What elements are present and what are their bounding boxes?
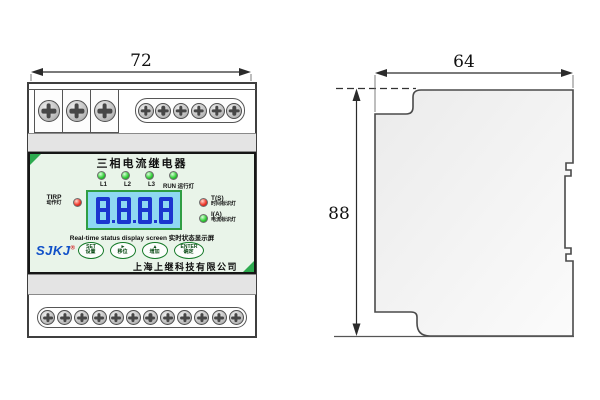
upper-gray-band — [28, 133, 256, 152]
set-button: SET 设置 — [78, 242, 104, 259]
screw-terminal-icon — [209, 103, 225, 119]
arrow-left-icon — [375, 69, 387, 77]
current-subtext: 电流标识灯 — [211, 218, 236, 224]
decimal-point-icon — [112, 220, 115, 223]
segment-digit — [159, 197, 173, 224]
arrow-right-icon — [561, 69, 573, 77]
shift-button-cn: 移位 — [118, 250, 128, 255]
led-run-icon — [169, 171, 178, 180]
front-width-value: 72 — [130, 51, 152, 71]
enter-button: ENTER 确定 — [174, 242, 204, 259]
segment-digit — [96, 197, 110, 224]
led-l3-icon — [145, 171, 154, 180]
screw-terminal-icon — [74, 310, 89, 325]
screw-terminal-icon — [138, 103, 154, 119]
screw-terminal-icon — [38, 100, 60, 122]
terminal-cell — [62, 89, 91, 133]
company-name: 上海上继科技有限公司 — [133, 260, 238, 273]
brand-logo: SJKJ® — [36, 243, 75, 258]
segment-digit — [117, 197, 131, 224]
top-terminal-cells — [34, 89, 119, 133]
bottom-terminal-strip — [37, 307, 247, 328]
seven-segment-display — [86, 190, 182, 230]
increase-button: ▲ 增加 — [142, 242, 168, 259]
screw-terminal-icon — [109, 310, 124, 325]
increase-button-cn: 增加 — [150, 250, 160, 255]
screw-terminal-icon — [155, 103, 171, 119]
front-width-dimension: 72 — [25, 50, 260, 82]
led-l3-label: L3 — [148, 182, 155, 188]
side-profile-outline — [375, 90, 573, 336]
lower-gray-band — [28, 274, 256, 295]
enter-button-cn: 确定 — [184, 250, 194, 255]
display-digits — [96, 197, 173, 224]
screw-terminal-icon — [191, 103, 207, 119]
screw-terminal-icon — [160, 310, 175, 325]
decimal-point-icon — [133, 220, 136, 223]
relay-side-view: 88 64 — [325, 50, 583, 372]
brand-name: SJKJ — [36, 243, 71, 258]
led-current-icon — [199, 214, 208, 223]
technical-drawing: 72 三相电流继电器 L1 L2 L3 RUN 运行灯 — [0, 0, 600, 400]
trip-led-label: TIRP 动作灯 — [38, 194, 70, 207]
decimal-point-icon — [154, 220, 157, 223]
top-terminal-strip — [135, 98, 245, 123]
screw-terminal-icon — [229, 310, 244, 325]
time-subtext: 时间标识灯 — [211, 202, 236, 208]
screw-terminal-icon — [66, 100, 88, 122]
segment-digit — [138, 197, 152, 224]
screw-terminal-icon — [194, 310, 209, 325]
screw-terminal-icon — [40, 310, 55, 325]
screw-terminal-icon — [173, 103, 189, 119]
led-l1-label: L1 — [100, 182, 107, 188]
arrow-down-icon — [353, 324, 361, 337]
trip-subtext: 动作灯 — [38, 201, 70, 207]
screw-terminal-icon — [177, 310, 192, 325]
led-l1-icon — [97, 171, 106, 180]
side-depth-value: 64 — [453, 52, 475, 72]
screw-terminal-icon — [57, 310, 72, 325]
corner-accent-icon — [243, 261, 254, 272]
shift-button: ► 移位 — [110, 242, 136, 259]
registered-mark-icon: ® — [71, 246, 76, 252]
side-height-value: 88 — [328, 204, 350, 224]
led-l2-label: L2 — [124, 182, 131, 188]
led-time-icon — [199, 198, 208, 207]
screw-terminal-icon — [126, 310, 141, 325]
terminal-cell — [90, 89, 119, 133]
screw-terminal-icon — [226, 103, 242, 119]
relay-front-view: 三相电流继电器 L1 L2 L3 RUN 运行灯 TIRP 动作灯 — [27, 82, 257, 338]
current-led-label: I(A) 电流标识灯 — [211, 211, 236, 224]
screw-terminal-icon — [94, 100, 116, 122]
relay-face-panel: 三相电流继电器 L1 L2 L3 RUN 运行灯 TIRP 动作灯 — [28, 152, 256, 274]
screw-terminal-icon — [212, 310, 227, 325]
led-run-label: RUN 运行灯 — [163, 182, 194, 190]
display-caption: Real-time status display screen 实时状态显示屏 — [30, 232, 254, 242]
terminal-cell — [34, 89, 63, 133]
time-led-label: T(S) 时间标识灯 — [211, 195, 236, 208]
screw-terminal-icon — [143, 310, 158, 325]
led-l2-icon — [121, 171, 130, 180]
led-trip-icon — [73, 198, 82, 207]
arrow-up-icon — [353, 89, 361, 102]
screw-terminal-icon — [92, 310, 107, 325]
panel-title: 三相电流继电器 — [30, 155, 254, 171]
set-button-cn: 设置 — [86, 250, 96, 255]
